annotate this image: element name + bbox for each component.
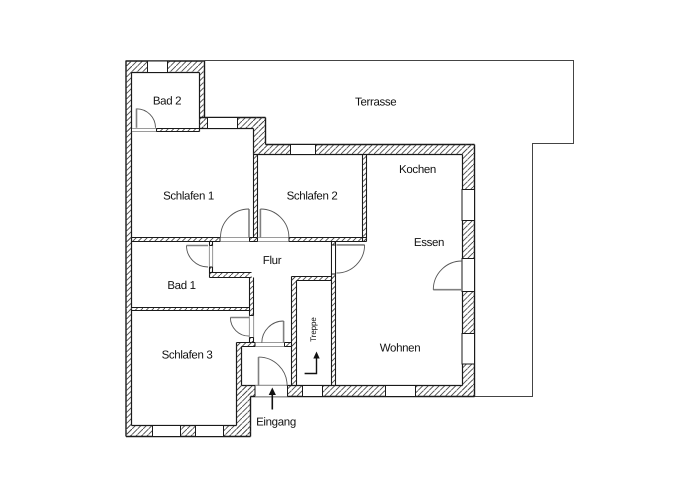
svg-text:Terrasse: Terrasse: [355, 97, 396, 109]
svg-text:Essen: Essen: [414, 237, 444, 249]
svg-text:Eingang: Eingang: [256, 417, 296, 429]
svg-text:Wohnen: Wohnen: [380, 343, 421, 355]
svg-text:Bad 1: Bad 1: [167, 280, 195, 292]
svg-text:Bad 2: Bad 2: [153, 95, 181, 107]
svg-text:Flur: Flur: [263, 255, 282, 267]
svg-text:Schlafen 2: Schlafen 2: [287, 191, 338, 203]
svg-text:Schlafen 3: Schlafen 3: [162, 350, 213, 362]
svg-text:Kochen: Kochen: [399, 164, 436, 176]
svg-text:Treppe: Treppe: [309, 317, 318, 342]
svg-text:Schlafen 1: Schlafen 1: [163, 191, 214, 203]
